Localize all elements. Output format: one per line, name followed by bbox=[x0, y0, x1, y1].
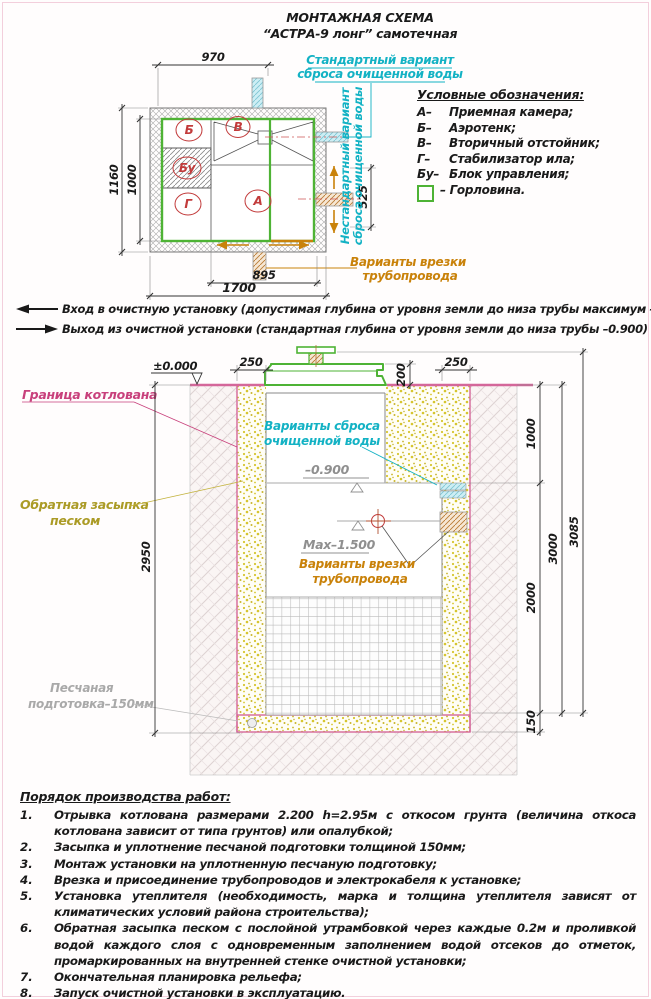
io-notes: Вход в очистную установку (допустимая гл… bbox=[16, 299, 644, 339]
section-view: ±0.000 –0.900 Max–1.500 Варианты врезки … bbox=[20, 345, 588, 775]
work-order-item: 3. Монтаж установки на уплотненную песча… bbox=[20, 856, 636, 872]
drawing-title: МОНТАЖНАЯ СХЕМА “АСТРА-9 лонг” самотечна… bbox=[240, 10, 480, 42]
plan-view: Б В Бу Г А 970 1160 bbox=[107, 50, 467, 300]
compartment-label-v: В bbox=[234, 120, 243, 134]
legend-item: В– Вторичный отстойник; bbox=[417, 136, 645, 152]
callout-backfill-2: песком bbox=[50, 513, 100, 528]
item-number: 7. bbox=[20, 969, 54, 985]
callout-pit-boundary: Граница котлована bbox=[22, 387, 157, 402]
work-order-item: 4. Врезка и присоединение трубопроводов … bbox=[20, 872, 636, 888]
dim-895-label: 895 bbox=[252, 268, 275, 282]
level-out-label: –0.900 bbox=[305, 462, 350, 477]
compartment-label-bu: Бу bbox=[179, 161, 197, 175]
legend-label: – Горловина. bbox=[440, 183, 525, 200]
legend-title: Условные обозначения: bbox=[417, 87, 645, 102]
section-callout-tap-2: трубопровода bbox=[312, 572, 407, 586]
level-zero-label: ±0.000 bbox=[153, 359, 198, 373]
montage-scheme-page: Б В Бу Г А 970 1160 bbox=[0, 0, 651, 999]
section-callout-tap-1: Варианты врезки bbox=[299, 557, 416, 571]
item-number: 5. bbox=[20, 888, 54, 920]
item-text: Установка утеплителя (необходимость, мар… bbox=[54, 888, 636, 920]
callout-backfill-1: Обратная засыпка bbox=[20, 497, 149, 512]
outlet-note-text: Выход из очистной установки (стандартная… bbox=[62, 322, 648, 336]
outlet-pipe-piece-1 bbox=[440, 483, 466, 490]
dim-3085-label: 3085 bbox=[567, 516, 581, 547]
dim-1700-label: 1700 bbox=[222, 280, 256, 295]
title-line-1: МОНТАЖНАЯ СХЕМА bbox=[240, 10, 480, 26]
item-text: Монтаж установки на уплотненную песчаную… bbox=[54, 856, 636, 872]
sand-preparation-layer bbox=[237, 715, 470, 732]
dim-250-right-label: 250 bbox=[444, 355, 467, 369]
plan-callout-tap-1: Варианты врезки bbox=[350, 255, 467, 269]
sand-backfill-left bbox=[237, 386, 266, 715]
title-line-2: “АСТРА-9 лонг” самотечная bbox=[240, 26, 480, 42]
item-number: 3. bbox=[20, 856, 54, 872]
work-order-item: 6. Обратная засыпка песком с послойной у… bbox=[20, 920, 636, 969]
tank-lid bbox=[265, 364, 386, 385]
work-order-title: Порядок производства работ: bbox=[20, 789, 636, 804]
item-number: 2. bbox=[20, 839, 54, 855]
callout-nonstandard-discharge-1: Нестандартный вариант bbox=[338, 86, 352, 244]
dim-970-label: 970 bbox=[201, 50, 224, 64]
callout-standard-discharge-1: Стандартный вариант bbox=[306, 53, 455, 67]
legend-label: Стабилизатор ила; bbox=[449, 152, 575, 168]
callout-nonstandard-discharge-2: сброса очищенной воды bbox=[351, 86, 365, 245]
arrow-right-icon bbox=[16, 323, 58, 335]
work-order-item: 8. Запуск очистной установки в эксплуата… bbox=[20, 985, 636, 999]
legend-item-neck: – Горловина. bbox=[417, 183, 645, 200]
plan-callout-tap-2: трубопровода bbox=[362, 269, 457, 283]
legend-label: Блок управления; bbox=[449, 167, 569, 183]
item-number: 1. bbox=[20, 807, 54, 839]
dim-150-label: 150 bbox=[524, 710, 538, 733]
legend-item: А– Приемная камера; bbox=[417, 105, 645, 121]
legend-key: Б– bbox=[417, 121, 449, 137]
dim-1000-right-label: 1000 bbox=[524, 418, 538, 449]
item-text: Врезка и присоединение трубопроводов и э… bbox=[54, 872, 636, 888]
legend-item: Г– Стабилизатор ила; bbox=[417, 152, 645, 168]
callout-sandprep-1: Песчаная bbox=[50, 681, 114, 695]
item-text: Засыпка и уплотнение песчаной подготовки… bbox=[54, 839, 636, 855]
legend-key: Бу– bbox=[417, 167, 449, 183]
legend-label: Аэротенк; bbox=[449, 121, 516, 137]
callout-discharge-1: Варианты сброса bbox=[264, 419, 380, 433]
arrow-left-icon bbox=[16, 303, 58, 315]
work-order-item: 1. Отрывка котлована размерами 2.200 h=2… bbox=[20, 807, 636, 839]
item-text: Окончательная планировка рельефа; bbox=[54, 969, 636, 985]
work-order-item: 5. Установка утеплителя (необходимость, … bbox=[20, 888, 636, 920]
work-order-item: 7. Окончательная планировка рельефа; bbox=[20, 969, 636, 985]
inlet-pipe-piece bbox=[440, 512, 467, 532]
dim-1160-label: 1160 bbox=[107, 164, 121, 195]
legend-key: Г– bbox=[417, 152, 449, 168]
item-text: Обратная засыпка песком с послойной утра… bbox=[54, 920, 636, 969]
item-text: Запуск очистной установки в эксплуатацию… bbox=[54, 985, 636, 999]
tank-ribbed-body bbox=[266, 597, 442, 715]
item-number: 6. bbox=[20, 920, 54, 969]
callout-standard-discharge-2: сброса очищенной воды bbox=[297, 67, 463, 81]
compartment-label-a: А bbox=[253, 194, 263, 208]
dim-1000-label: 1000 bbox=[125, 164, 139, 195]
drain-detail bbox=[248, 719, 257, 728]
item-number: 4. bbox=[20, 872, 54, 888]
dim-2950-label: 2950 bbox=[139, 541, 153, 572]
legend: Условные обозначения: А– Приемная камера… bbox=[417, 87, 645, 200]
dim-2000-label: 2000 bbox=[524, 582, 538, 613]
inlet-note-text: Вход в очистную установку (допустимая гл… bbox=[62, 302, 651, 316]
neck-swatch-icon bbox=[417, 185, 434, 202]
inlet-note: Вход в очистную установку (допустимая гл… bbox=[16, 299, 644, 319]
dim-250-left-label: 250 bbox=[239, 355, 262, 369]
legend-key: А– bbox=[417, 105, 449, 121]
work-order: Порядок производства работ: 1. Отрывка к… bbox=[20, 789, 636, 999]
dim-200-label: 200 bbox=[394, 363, 408, 386]
legend-label: Приемная камера; bbox=[449, 105, 573, 121]
legend-item: Б– Аэротенк; bbox=[417, 121, 645, 137]
level-zero-marker bbox=[192, 373, 202, 384]
callout-discharge-2: очищенной воды bbox=[264, 434, 380, 448]
outlet-note: Выход из очистной установки (стандартная… bbox=[16, 319, 644, 339]
level-max-label: Max–1.500 bbox=[303, 537, 376, 552]
plan-top-discharge-pipe bbox=[252, 78, 263, 108]
compartment-label-b: Б bbox=[185, 123, 194, 137]
item-text: Отрывка котлована размерами 2.200 h=2.95… bbox=[54, 807, 636, 839]
outlet-pipe-piece-2 bbox=[440, 491, 466, 498]
legend-item: Бу– Блок управления; bbox=[417, 167, 645, 183]
legend-key: В– bbox=[417, 136, 449, 152]
work-order-item: 2. Засыпка и уплотнение песчаной подгото… bbox=[20, 839, 636, 855]
dim-3000-label: 3000 bbox=[546, 533, 560, 564]
legend-label: Вторичный отстойник; bbox=[449, 136, 600, 152]
item-number: 8. bbox=[20, 985, 54, 999]
